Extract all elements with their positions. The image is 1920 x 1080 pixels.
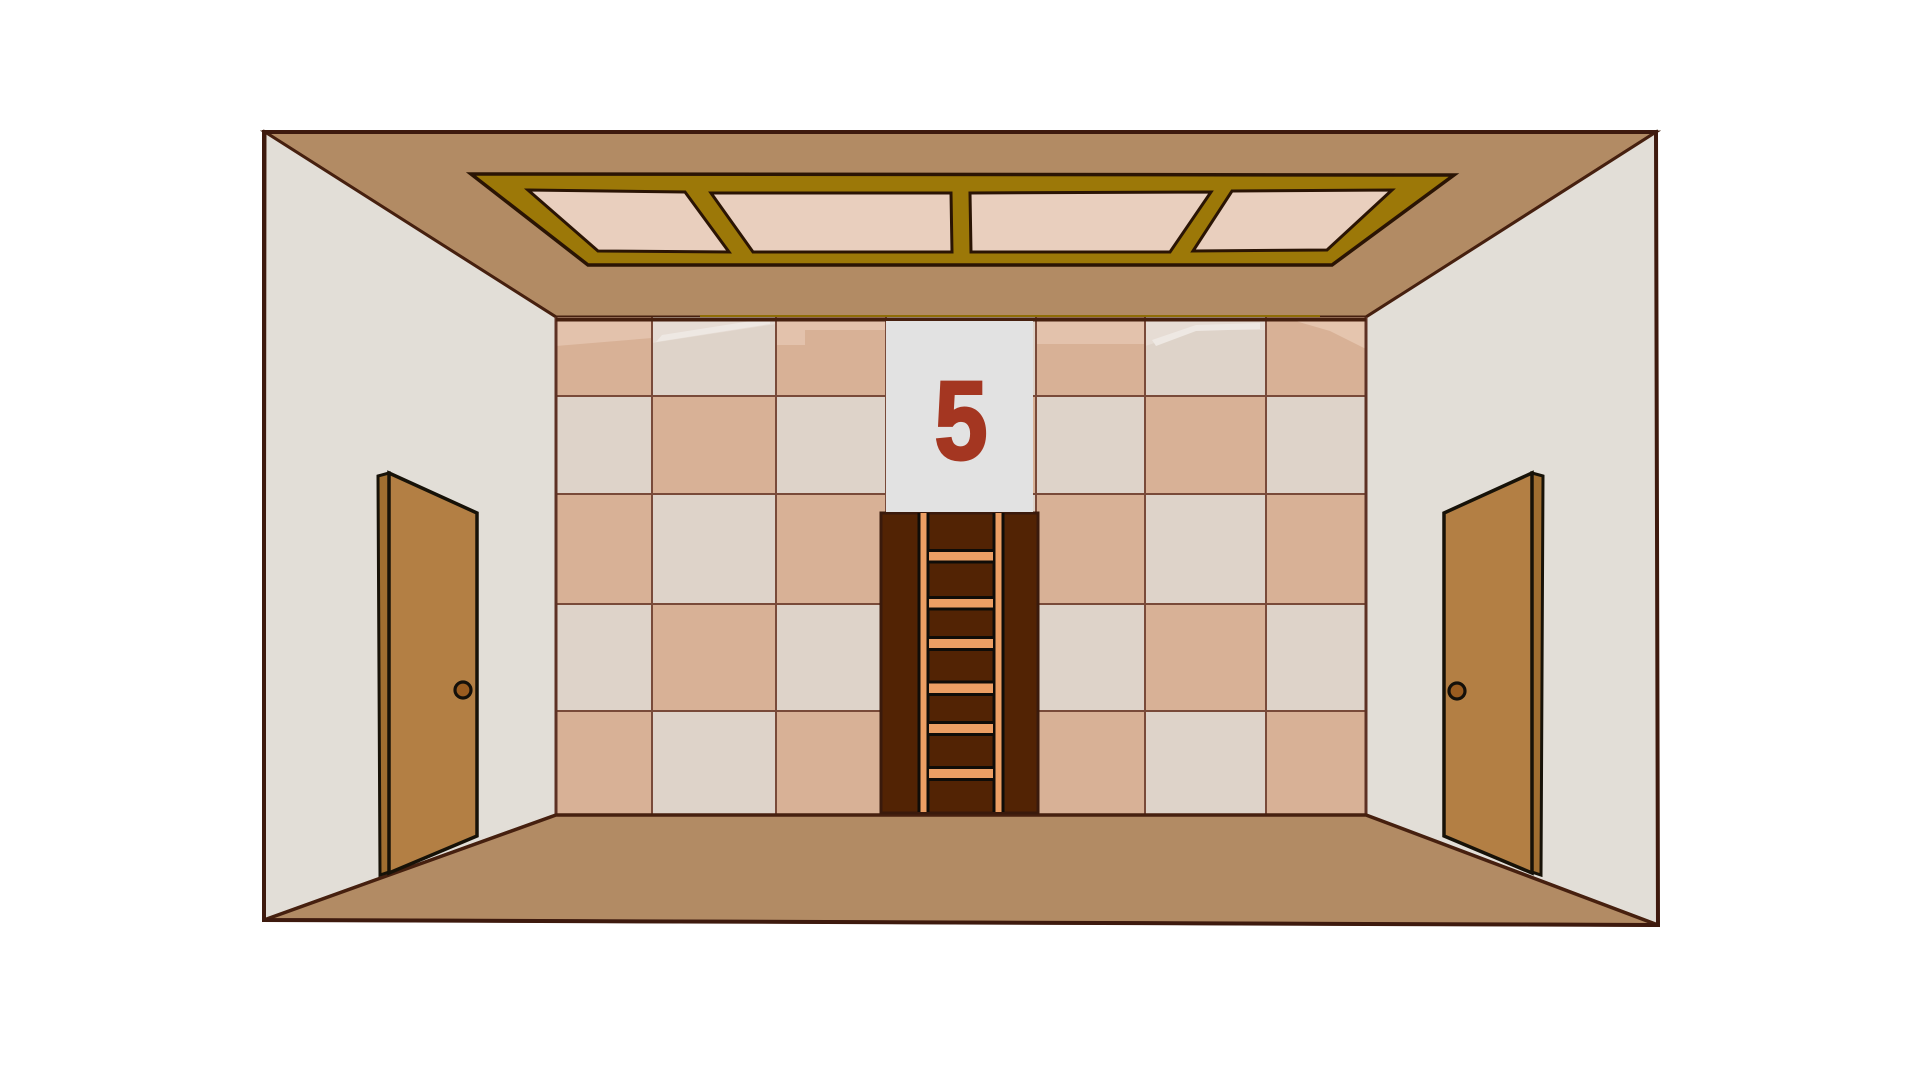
svg-text:5: 5	[935, 359, 988, 483]
